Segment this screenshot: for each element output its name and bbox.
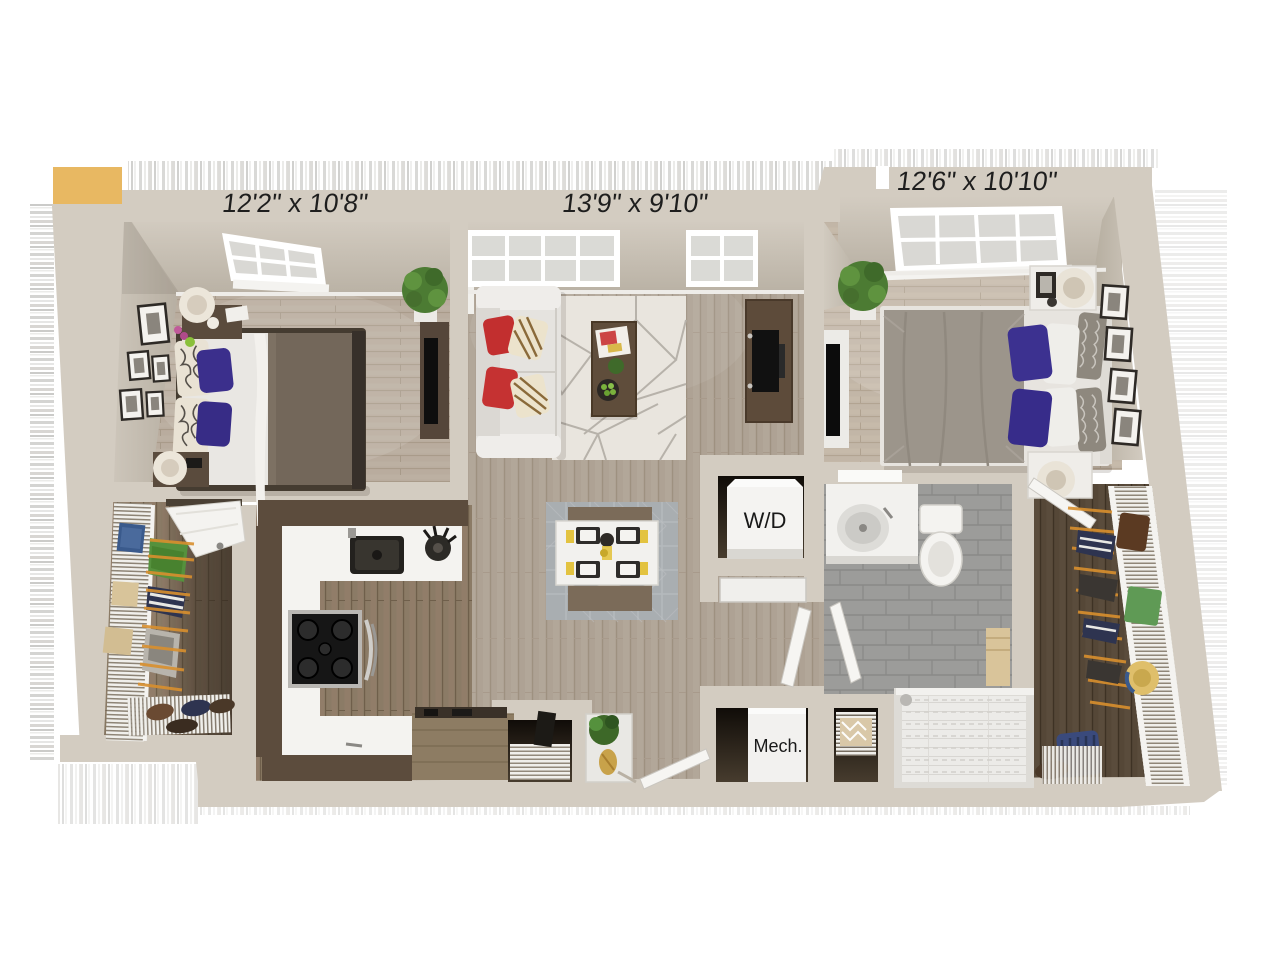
svg-text:12'6" x 10'10": 12'6" x 10'10" bbox=[895, 166, 1059, 196]
svg-text:Mech.: Mech. bbox=[753, 736, 802, 756]
svg-text:13'9" x 9'10": 13'9" x 9'10" bbox=[561, 188, 710, 218]
svg-text:W/D: W/D bbox=[744, 508, 787, 533]
svg-text:12'2" x 10'8": 12'2" x 10'8" bbox=[221, 188, 370, 218]
